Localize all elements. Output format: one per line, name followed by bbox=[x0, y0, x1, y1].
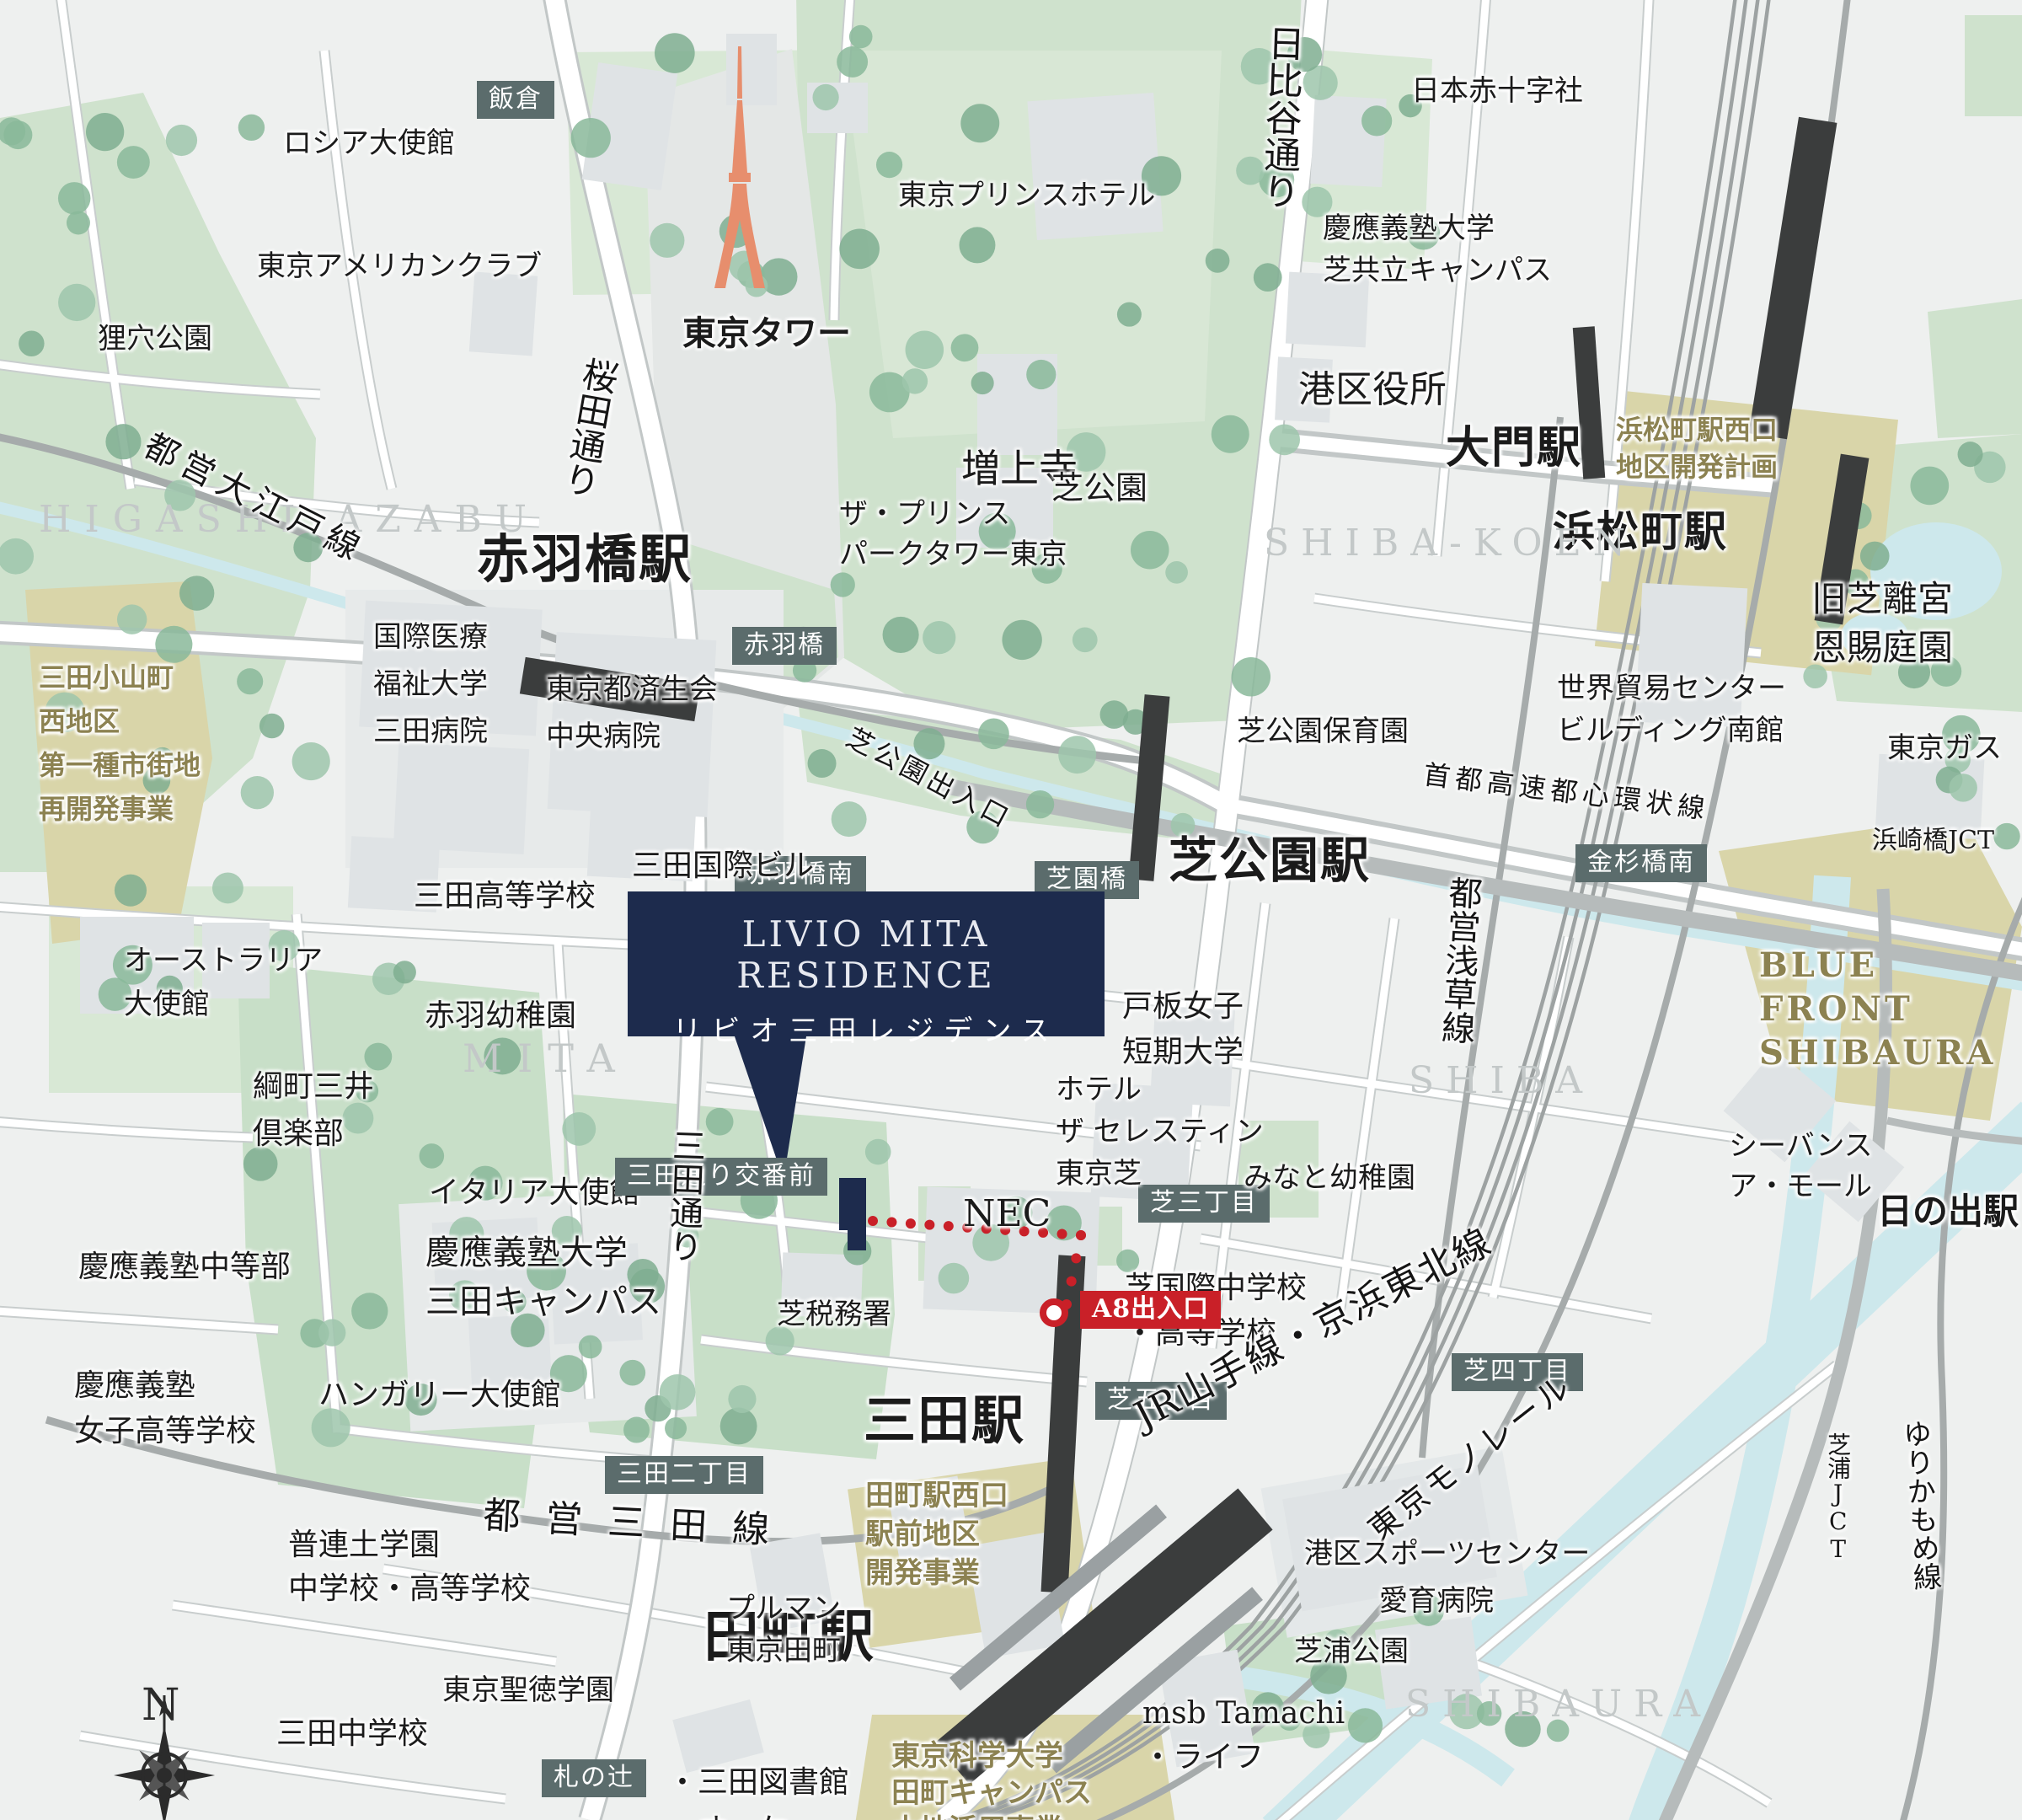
poi-shibakoen-nursery: 芝公園保育園 bbox=[1237, 715, 1409, 749]
poi-mita-junior-high: 三田中学校 bbox=[276, 1716, 428, 1753]
poi-russia-embassy: ロシア大使館 bbox=[283, 126, 455, 161]
station-shibakoen: 芝公園駅 bbox=[1169, 831, 1371, 891]
station-mita: 三田駅 bbox=[864, 1389, 1025, 1453]
poi-hungary-embassy: ハンガリー大使館 bbox=[318, 1377, 561, 1414]
poi-tokyo-gas: 東京ガス bbox=[1887, 731, 2002, 766]
area-shiba-koen: SHIBA-KOEN bbox=[1264, 521, 1637, 566]
access-map: N ロシア大使館飯倉東京アメリカンクラブ狸穴公園HIGASHI-AZABU桜田通… bbox=[0, 0, 2022, 1820]
road-asakusa-line: 都営浅草線 bbox=[1434, 875, 1484, 1045]
olive-tamachi-west-dev: 田町駅西口 駅前地区 開発事業 bbox=[865, 1476, 1008, 1592]
property-callout: LIVIO MITA RESIDENCE リビオ三田レジデンス bbox=[628, 891, 1105, 1036]
station-daimon: 大門駅 bbox=[1446, 421, 1582, 474]
olive-blue-front-shibaura: BLUE FRONT SHIBAURA bbox=[1759, 944, 2022, 1075]
poi-tsunamachi-mitsui-club: 綱町三井 倶楽部 bbox=[253, 1063, 374, 1158]
road-shibakoen-exit: 芝公園出入口 bbox=[841, 721, 1017, 836]
badge-mita-nichome: 三田二丁目 bbox=[605, 1456, 763, 1494]
poi-keio-mita-campus: 慶應義塾大学 三田キャンパス bbox=[425, 1228, 661, 1326]
road-yurikamome-line: ゆりかもめ線 bbox=[1896, 1418, 1943, 1592]
poi-shibaura-park: 芝浦公園 bbox=[1294, 1635, 1409, 1669]
badge-kanasugibashi-minami: 金杉橋南 bbox=[1575, 844, 1707, 882]
poi-minato-city-office: 港区役所 bbox=[1298, 367, 1447, 413]
poi-keio-girls-hs: 慶應義塾 女子高等学校 bbox=[74, 1363, 256, 1454]
road-sakurada-dori: 桜田通り bbox=[555, 354, 623, 500]
poi-prince-park-tower: ザ・プリンス パークタワー東京 bbox=[839, 494, 1067, 575]
poi-toita-womens-college: 戸板女子 短期大学 bbox=[1122, 984, 1244, 1075]
poi-tokyo-tower: 東京タワー bbox=[682, 313, 851, 355]
road-hibiya-dori: 日比谷通り bbox=[1254, 24, 1305, 211]
badge-iikura: 飯倉 bbox=[477, 81, 554, 119]
callout-title-en: LIVIO MITA RESIDENCE bbox=[628, 913, 1105, 996]
road-mita-dori: 三田通り bbox=[661, 1127, 706, 1264]
poi-mita-kokusai-bldg: 三田国際ビル bbox=[632, 848, 814, 885]
poi-nec: NEC bbox=[963, 1191, 1051, 1237]
area-mita: MITA bbox=[463, 1035, 630, 1082]
area-shiba: SHIBA bbox=[1409, 1058, 1594, 1104]
poi-shiba-tax-office: 芝税務署 bbox=[777, 1298, 891, 1332]
poi-pullman-tokyo: プルマン 東京田町 bbox=[726, 1587, 841, 1672]
poi-minato-sports-center: 港区スポーツセンター bbox=[1304, 1537, 1590, 1571]
poi-keio-chutobu: 慶應義塾中等部 bbox=[78, 1249, 291, 1286]
poi-hinode-station: 日の出駅 bbox=[1877, 1190, 2019, 1233]
poi-tokyo-american-club: 東京アメリカンクラブ bbox=[257, 249, 542, 284]
road-shibaura-jct: 芝浦JCT bbox=[1823, 1432, 1852, 1563]
poi-japan-red-cross: 日本赤十字社 bbox=[1411, 74, 1583, 109]
olive-tokyo-science-univ: 東京科学大学 田町キャンパス 土地活用事業 bbox=[891, 1737, 1092, 1820]
badge-fudanotsuji: 札の辻 bbox=[542, 1759, 646, 1797]
road-shuto-expressway: 首都高速都心環状線 bbox=[1421, 758, 1711, 826]
poi-hamazakibashi-jct: 浜崎橋JCT bbox=[1872, 826, 1994, 857]
poi-akabane-kindergarten: 赤羽幼稚園 bbox=[425, 998, 576, 1035]
poi-friends-school: 普連土学園 中学校・高等学校 bbox=[288, 1523, 531, 1611]
olive-hamamatsucho-west: 浜松町駅西口 地区開発計画 bbox=[1616, 411, 1778, 485]
poi-mita-library-ok: ・三田図書館 ・オーケー bbox=[667, 1759, 849, 1820]
poi-world-trade-center: 世界貿易センター ビルディング南館 bbox=[1557, 667, 1786, 752]
olive-mita-koyamacho: 三田小山町 西地区 第一種市街地 再開発事業 bbox=[39, 656, 201, 831]
road-tokyo-monorail: 東京モノレール bbox=[1361, 1366, 1580, 1550]
poi-seavans-a-mall: シーバンス ア・モール bbox=[1729, 1126, 1873, 1207]
poi-italy-embassy: イタリア大使館 bbox=[429, 1175, 640, 1212]
poi-hotel-celestine: ホテル ザ セレスティン 東京芝 bbox=[1056, 1068, 1264, 1195]
area-shibaura: SHIBAURA bbox=[1405, 1682, 1712, 1727]
poi-iuhw-mita-hospital: 国際医療 福祉大学 三田病院 bbox=[373, 613, 488, 755]
poi-australia-embassy: オーストラリア 大使館 bbox=[124, 939, 323, 1026]
poi-minato-kindergarten: みなと幼稚園 bbox=[1244, 1161, 1415, 1196]
poi-kyu-shiba-rikyu: 旧芝離宮 恩賜庭園 bbox=[1811, 575, 1953, 672]
badge-mitadori-kobanmae: 三田通り交番前 bbox=[615, 1158, 827, 1196]
poi-aiiku-hospital: 愛育病院 bbox=[1379, 1584, 1494, 1619]
station-akabanebashi: 赤羽橋駅 bbox=[477, 527, 693, 591]
badge-a8-exit: A8出入口 bbox=[1080, 1291, 1221, 1329]
poi-tokyo-prince-hotel: 東京プリンスホテル bbox=[898, 179, 1155, 213]
poi-msb-tamachi: msb Tamachi ・ライフ bbox=[1142, 1692, 1345, 1780]
poi-keio-shibakyoritsu: 慶應義塾大学 芝共立キャンパス bbox=[1323, 207, 1552, 292]
callout-title-ja: リビオ三田レジデンス bbox=[628, 1008, 1105, 1049]
poi-tokyo-shotoku: 東京聖徳学園 bbox=[442, 1673, 614, 1708]
poi-mamiana-park: 狸穴公園 bbox=[98, 322, 212, 356]
badge-akabanebashi: 赤羽橋 bbox=[732, 627, 837, 665]
poi-mita-high-school: 三田高等学校 bbox=[414, 878, 596, 915]
poi-saiseikai-hospital: 東京都済生会 中央病院 bbox=[546, 666, 718, 760]
